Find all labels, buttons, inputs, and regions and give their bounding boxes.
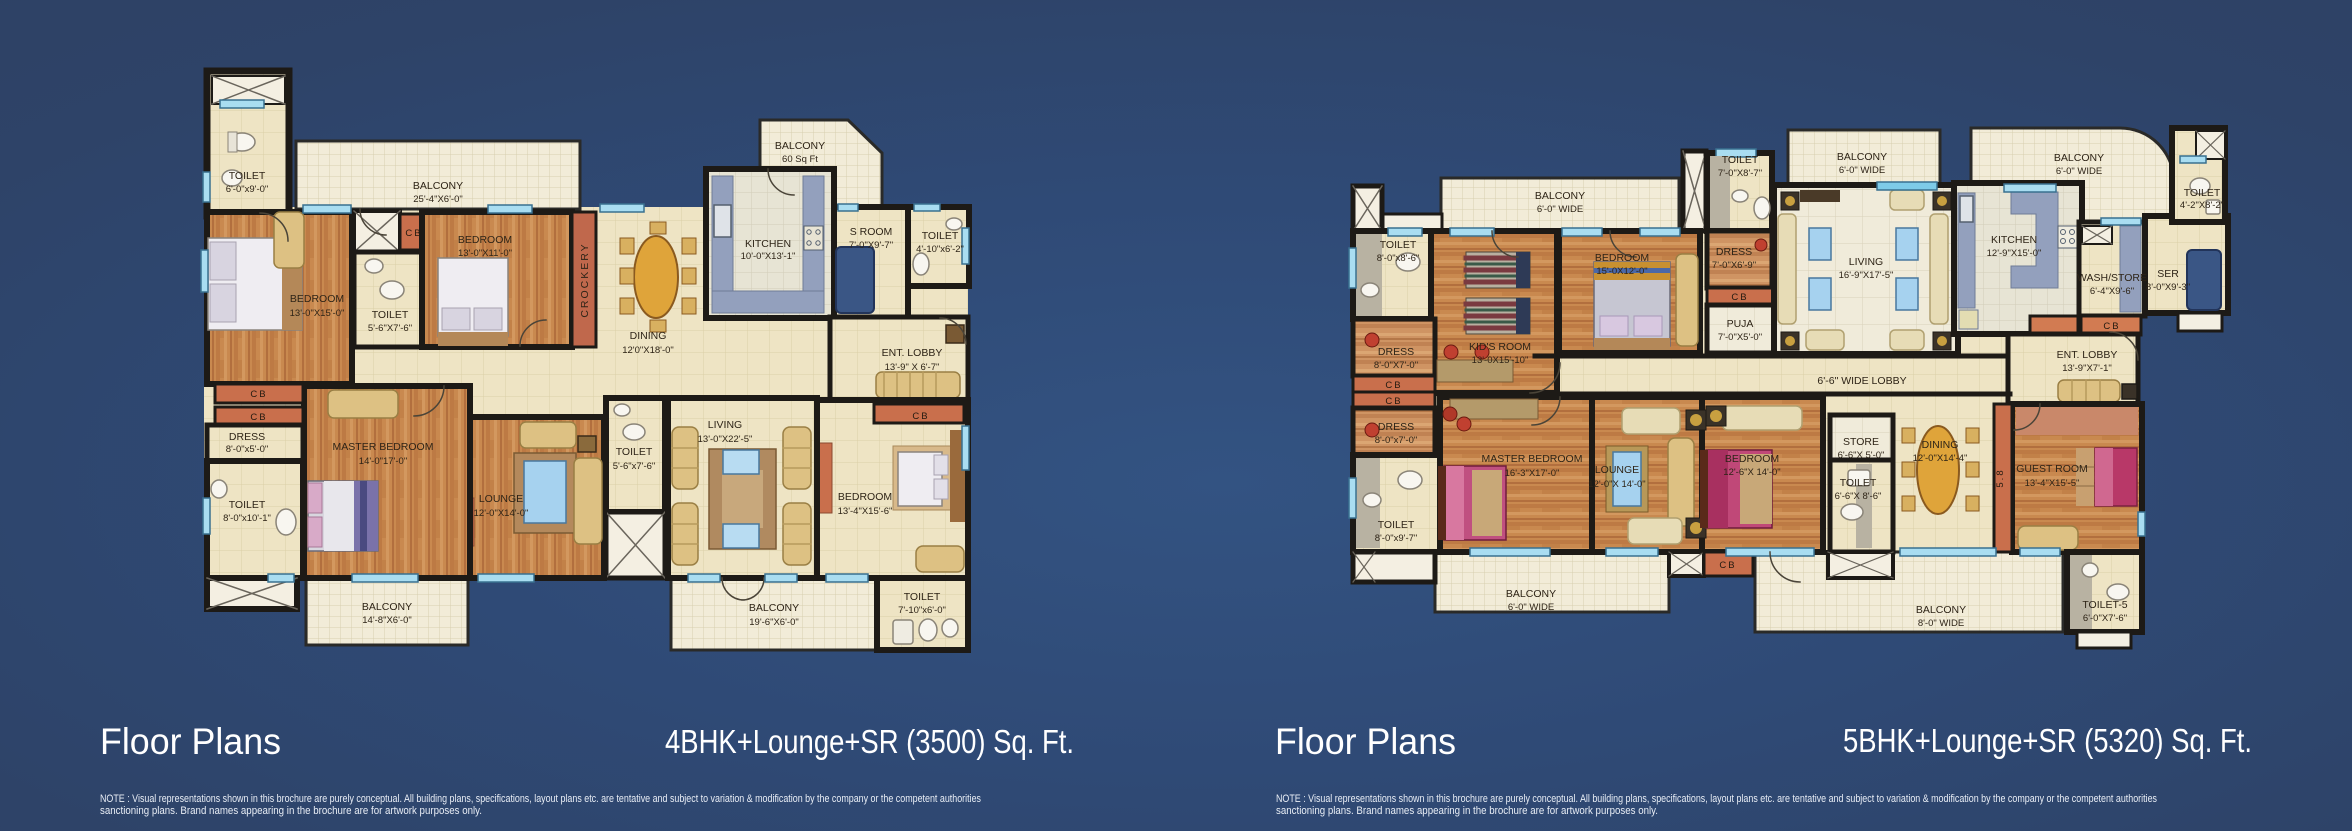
svg-text:sanctioning plans. Brand names: sanctioning plans. Brand names appearing…: [100, 805, 482, 817]
svg-text:ENT. LOBBY: ENT. LOBBY: [2057, 349, 2118, 361]
svg-text:4BHK+Lounge+SR (3500) Sq. Ft.: 4BHK+Lounge+SR (3500) Sq. Ft.: [665, 723, 1074, 760]
svg-text:BALCONY: BALCONY: [775, 140, 825, 152]
svg-text:25'-4"X6'-0": 25'-4"X6'-0": [413, 194, 462, 205]
svg-text:6'-0" WIDE: 6'-0" WIDE: [1537, 204, 1583, 215]
svg-text:6'-6" WIDE LOBBY: 6'-6" WIDE LOBBY: [1817, 375, 1906, 387]
svg-text:WASH/STORE: WASH/STORE: [2077, 272, 2147, 284]
svg-text:DRESS: DRESS: [1716, 246, 1752, 258]
svg-text:TOILET: TOILET: [229, 499, 266, 511]
svg-text:BALCONY: BALCONY: [413, 180, 463, 192]
svg-text:13'-9" X 6'-7": 13'-9" X 6'-7": [885, 362, 940, 373]
svg-text:S ROOM: S ROOM: [850, 226, 893, 238]
svg-text:6'-6"X 5'-0": 6'-6"X 5'-0": [1838, 450, 1885, 461]
svg-text:TOILET: TOILET: [904, 591, 941, 603]
svg-text:8'-0"x10'-1": 8'-0"x10'-1": [223, 513, 271, 524]
svg-text:DINING: DINING: [1922, 439, 1959, 451]
svg-text:13'-0X15'-10": 13'-0X15'-10": [1472, 355, 1529, 366]
svg-text:STORE: STORE: [1843, 436, 1879, 448]
svg-text:12'-0"X14'-4": 12'-0"X14'-4": [1913, 453, 1968, 464]
svg-text:12'-0"X 14'-0": 12'-0"X 14'-0": [1588, 479, 1645, 490]
svg-text:DRESS: DRESS: [229, 431, 265, 443]
svg-text:16'-3"X17'-0": 16'-3"X17'-0": [1505, 468, 1560, 479]
svg-text:BALCONY: BALCONY: [2054, 152, 2104, 164]
svg-text:7'-10"x6'-0": 7'-10"x6'-0": [898, 605, 946, 616]
svg-text:CB: CB: [250, 412, 267, 423]
svg-text:4'-2"X8'-2": 4'-2"X8'-2": [2180, 200, 2224, 211]
svg-text:14'-8"X6'-0": 14'-8"X6'-0": [362, 615, 411, 626]
svg-text:LIVING: LIVING: [708, 419, 742, 431]
svg-text:BALCONY: BALCONY: [1916, 604, 1966, 616]
svg-text:7'-0"X5'-0": 7'-0"X5'-0": [1718, 332, 1762, 343]
svg-text:5'-6"x7'-6": 5'-6"x7'-6": [613, 461, 656, 472]
svg-text:7'-0"X8'-7": 7'-0"X8'-7": [1718, 168, 1762, 179]
svg-text:7'-0"X9'-7": 7'-0"X9'-7": [849, 240, 893, 251]
svg-text:CROCKERY: CROCKERY: [579, 242, 591, 317]
svg-text:BEDROOM: BEDROOM: [1595, 252, 1649, 264]
svg-text:CB: CB: [1731, 292, 1748, 303]
svg-text:DRESS: DRESS: [1378, 421, 1414, 433]
svg-text:13'-0"X11'-0": 13'-0"X11'-0": [458, 248, 512, 259]
svg-text:TOILET: TOILET: [1380, 239, 1417, 251]
svg-text:7'-0"X6'-9": 7'-0"X6'-9": [1712, 260, 1756, 271]
svg-text:8'-0"x5'-0": 8'-0"x5'-0": [226, 444, 269, 455]
svg-text:13'-9"X7'-1": 13'-9"X7'-1": [2062, 363, 2111, 374]
svg-text:8'-0" WIDE: 8'-0" WIDE: [1918, 618, 1964, 629]
svg-text:12'-6"X 14'-0": 12'-6"X 14'-0": [1723, 467, 1780, 478]
svg-text:PUJA: PUJA: [1727, 318, 1754, 330]
svg-text:13'-4"X15'-5": 13'-4"X15'-5": [2025, 478, 2080, 489]
svg-text:CB: CB: [1385, 380, 1402, 391]
svg-text:TOILET-5: TOILET-5: [2082, 599, 2127, 611]
svg-text:14'-0"17'-0": 14'-0"17'-0": [359, 456, 407, 467]
svg-text:CB: CB: [250, 389, 267, 400]
svg-text:ENT. LOBBY: ENT. LOBBY: [882, 347, 943, 359]
svg-text:12'-0"X14'-0": 12'-0"X14'-0": [474, 508, 529, 519]
svg-text:13'-0"X22'-5": 13'-0"X22'-5": [698, 434, 753, 445]
svg-text:6'-0" WIDE: 6'-0" WIDE: [2056, 166, 2102, 177]
svg-text:BEDROOM: BEDROOM: [458, 234, 512, 246]
svg-text:sanctioning plans. Brand names: sanctioning plans. Brand names appearing…: [1276, 805, 1658, 817]
svg-text:12'0"X18'-0": 12'0"X18'-0": [622, 345, 674, 356]
svg-text:MASTER BEDROOM: MASTER BEDROOM: [333, 441, 434, 453]
svg-text:TOILET: TOILET: [1840, 477, 1877, 489]
svg-text:13'-0"X15'-0": 13'-0"X15'-0": [290, 308, 345, 319]
svg-text:CB: CB: [405, 228, 422, 239]
svg-text:LOUNGE: LOUNGE: [479, 493, 523, 505]
svg-text:6'-0"x9'-0": 6'-0"x9'-0": [226, 184, 269, 195]
svg-text:KITCHEN: KITCHEN: [1991, 234, 2037, 246]
svg-text:BALCONY: BALCONY: [1837, 151, 1887, 163]
svg-text:BEDROOM: BEDROOM: [838, 491, 892, 503]
svg-text:TOILET: TOILET: [229, 170, 266, 182]
svg-text:5.8: 5.8: [1995, 468, 2006, 487]
svg-text:6'-0" WIDE: 6'-0" WIDE: [1508, 602, 1554, 613]
svg-text:TOILET: TOILET: [1378, 519, 1415, 531]
svg-text:10'-0"X13'-1": 10'-0"X13'-1": [741, 251, 796, 262]
svg-text:TOILET: TOILET: [922, 230, 959, 242]
svg-text:CB: CB: [1719, 560, 1736, 571]
svg-text:KITCHEN: KITCHEN: [745, 238, 791, 250]
svg-text:CB: CB: [1385, 396, 1402, 407]
svg-text:BALCONY: BALCONY: [1535, 190, 1585, 202]
svg-text:12'-9"X15'-0": 12'-9"X15'-0": [1987, 248, 2042, 259]
svg-text:KID'S ROOM: KID'S ROOM: [1469, 341, 1531, 353]
svg-text:CB: CB: [2103, 321, 2120, 332]
svg-text:CB: CB: [912, 411, 929, 422]
svg-text:8'-0"X9'-3": 8'-0"X9'-3": [2146, 282, 2190, 293]
svg-text:Floor Plans: Floor Plans: [1275, 721, 1456, 762]
svg-text:BEDROOM: BEDROOM: [290, 293, 344, 305]
svg-text:6'-0" WIDE: 6'-0" WIDE: [1839, 165, 1885, 176]
svg-text:DINING: DINING: [630, 330, 667, 342]
svg-text:NOTE : Visual representations: NOTE : Visual representations shown in t…: [100, 793, 981, 805]
svg-text:8'-0"x8'-6": 8'-0"x8'-6": [1377, 253, 1420, 264]
svg-text:TOILET: TOILET: [616, 446, 653, 458]
svg-text:DRESS: DRESS: [1378, 346, 1414, 358]
svg-text:6'-6"X 8'-6": 6'-6"X 8'-6": [1835, 491, 1882, 502]
svg-text:Floor Plans: Floor Plans: [100, 721, 281, 762]
svg-text:19'-6"X6'-0": 19'-6"X6'-0": [749, 617, 798, 628]
svg-text:BALCONY: BALCONY: [362, 601, 412, 613]
svg-text:GUEST ROOM: GUEST ROOM: [2016, 463, 2088, 475]
svg-text:8'-0"X7'-0": 8'-0"X7'-0": [1374, 360, 1418, 371]
svg-text:13'-4"X15'-6": 13'-4"X15'-6": [838, 506, 893, 517]
svg-text:TOILET: TOILET: [372, 309, 409, 321]
svg-text:6'-0"X7'-6": 6'-0"X7'-6": [2083, 613, 2127, 624]
svg-text:4'-10"x6'-2": 4'-10"x6'-2": [916, 244, 964, 255]
svg-text:8'-0"x9'-7": 8'-0"x9'-7": [1375, 533, 1418, 544]
svg-text:LOUNGE: LOUNGE: [1595, 464, 1639, 476]
svg-text:TOILET: TOILET: [1722, 154, 1759, 166]
svg-text:BALCONY: BALCONY: [749, 602, 799, 614]
svg-text:SER: SER: [2157, 268, 2179, 280]
svg-text:16'-9"X17'-5": 16'-9"X17'-5": [1839, 270, 1894, 281]
svg-text:BALCONY: BALCONY: [1506, 588, 1556, 600]
svg-text:MASTER BEDROOM: MASTER BEDROOM: [1482, 453, 1583, 465]
svg-text:15'-0X12'-0": 15'-0X12'-0": [1596, 266, 1647, 277]
svg-text:60 Sq Ft: 60 Sq Ft: [782, 154, 818, 165]
svg-text:5BHK+Lounge+SR (5320) Sq. Ft.: 5BHK+Lounge+SR (5320) Sq. Ft.: [1843, 722, 2252, 759]
svg-text:LIVING: LIVING: [1849, 256, 1883, 268]
svg-text:8'-0"x7'-0": 8'-0"x7'-0": [1375, 435, 1418, 446]
svg-text:BEDROOM: BEDROOM: [1725, 453, 1779, 465]
svg-text:TOILET: TOILET: [2184, 187, 2221, 199]
svg-text:5'-6"X7'-6": 5'-6"X7'-6": [368, 323, 412, 334]
svg-text:6'-4"X9'-6": 6'-4"X9'-6": [2090, 286, 2134, 297]
svg-text:NOTE : Visual representations: NOTE : Visual representations shown in t…: [1276, 793, 2157, 805]
